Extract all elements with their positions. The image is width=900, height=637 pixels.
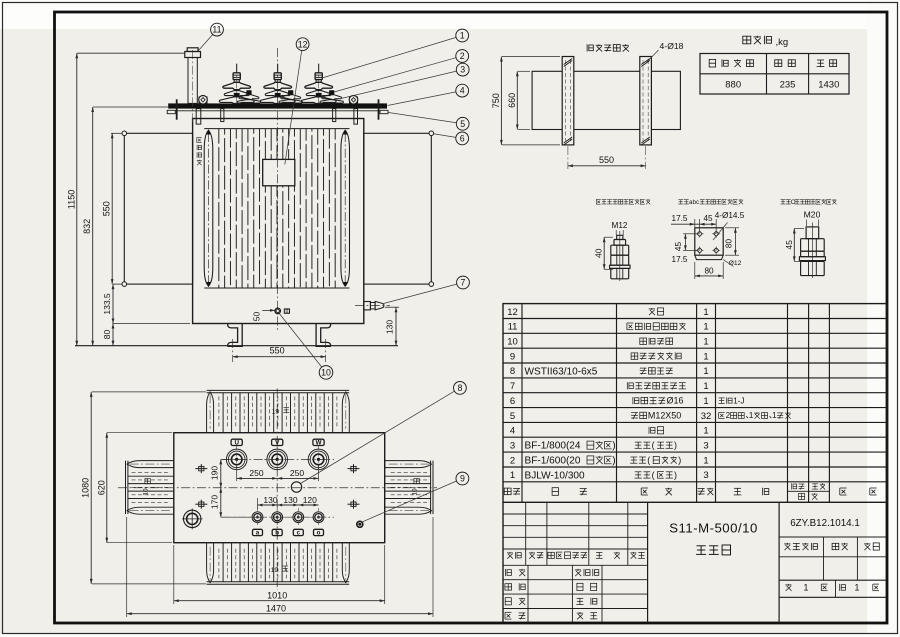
svg-text:190: 190 bbox=[210, 466, 220, 480]
svg-text:c: c bbox=[297, 530, 301, 537]
svg-text:2: 2 bbox=[510, 455, 515, 466]
svg-text:45: 45 bbox=[784, 240, 794, 250]
svg-text:1-J: 1-J bbox=[733, 396, 744, 405]
svg-text:): ) bbox=[612, 441, 615, 452]
svg-text:M12X50: M12X50 bbox=[648, 411, 681, 421]
svg-text:4-Ø18: 4-Ø18 bbox=[660, 41, 684, 51]
svg-text:80: 80 bbox=[725, 239, 734, 249]
svg-text:17.5: 17.5 bbox=[672, 214, 688, 223]
svg-text:19: 19 bbox=[272, 409, 280, 416]
svg-text:Ø16: Ø16 bbox=[667, 396, 684, 406]
svg-text:2: 2 bbox=[460, 51, 465, 61]
svg-text:9: 9 bbox=[460, 474, 465, 484]
svg-text:2: 2 bbox=[726, 411, 731, 420]
svg-text:550: 550 bbox=[599, 155, 614, 165]
svg-text:5: 5 bbox=[510, 411, 515, 422]
svg-text:1: 1 bbox=[772, 411, 777, 420]
svg-text:BJLW-10/300: BJLW-10/300 bbox=[525, 470, 586, 481]
svg-text:17.5: 17.5 bbox=[672, 255, 688, 264]
svg-text:832: 832 bbox=[82, 219, 92, 234]
svg-text:1: 1 bbox=[703, 337, 708, 348]
svg-text:4-Ø14.5: 4-Ø14.5 bbox=[715, 211, 745, 220]
svg-text:3: 3 bbox=[460, 65, 465, 75]
svg-text:Ø12: Ø12 bbox=[729, 260, 742, 267]
svg-text:(: ( bbox=[647, 455, 650, 465]
svg-text:130: 130 bbox=[385, 320, 395, 334]
svg-text:3: 3 bbox=[510, 440, 515, 451]
svg-text:1: 1 bbox=[703, 307, 708, 318]
svg-text:250: 250 bbox=[290, 468, 304, 478]
svg-text:M20: M20 bbox=[804, 210, 821, 220]
svg-text:WSTII63/10-6x5: WSTII63/10-6x5 bbox=[525, 366, 598, 377]
svg-text:BF-1/800(24: BF-1/800(24 bbox=[525, 441, 581, 452]
svg-text:1: 1 bbox=[703, 396, 708, 407]
svg-text:): ) bbox=[674, 440, 677, 450]
svg-text:1470: 1470 bbox=[266, 603, 286, 613]
svg-text:BF-1/600(20: BF-1/600(20 bbox=[525, 455, 581, 466]
svg-text:1430: 1430 bbox=[818, 79, 839, 90]
svg-text:): ) bbox=[674, 470, 677, 480]
svg-text:5: 5 bbox=[460, 119, 465, 129]
svg-text:1: 1 bbox=[804, 583, 809, 593]
svg-text:6ZY.B12.1014.1: 6ZY.B12.1014.1 bbox=[790, 518, 860, 529]
svg-text:550: 550 bbox=[102, 201, 112, 216]
svg-text:6: 6 bbox=[460, 134, 465, 144]
svg-text:1: 1 bbox=[703, 351, 708, 362]
svg-text:1010: 1010 bbox=[267, 590, 287, 600]
svg-text:1080: 1080 bbox=[81, 478, 91, 498]
svg-text:1150: 1150 bbox=[66, 190, 76, 209]
svg-text:620: 620 bbox=[96, 480, 106, 495]
svg-text:,kg: ,kg bbox=[776, 37, 789, 48]
svg-text:6: 6 bbox=[510, 396, 515, 407]
svg-text:3: 3 bbox=[703, 440, 708, 451]
svg-text:12: 12 bbox=[298, 39, 308, 49]
svg-text:S11-M-500/10: S11-M-500/10 bbox=[669, 521, 758, 536]
svg-text:880: 880 bbox=[725, 79, 741, 90]
svg-text:250: 250 bbox=[249, 468, 263, 478]
svg-text:10: 10 bbox=[412, 488, 419, 496]
svg-text:3: 3 bbox=[703, 470, 708, 481]
svg-text:10: 10 bbox=[143, 488, 150, 496]
svg-text:170: 170 bbox=[210, 495, 220, 509]
svg-text:1: 1 bbox=[749, 411, 754, 420]
svg-text:11: 11 bbox=[508, 322, 518, 333]
svg-text:550: 550 bbox=[270, 346, 285, 356]
svg-text:1: 1 bbox=[703, 322, 708, 333]
svg-text:80: 80 bbox=[704, 267, 714, 276]
svg-text:120: 120 bbox=[303, 495, 317, 505]
svg-text:): ) bbox=[612, 455, 615, 466]
svg-text:7: 7 bbox=[510, 381, 515, 392]
svg-text:45: 45 bbox=[674, 242, 683, 252]
svg-text:1: 1 bbox=[855, 583, 860, 593]
svg-text:o: o bbox=[317, 530, 321, 537]
svg-text:10: 10 bbox=[507, 337, 518, 348]
svg-text:12: 12 bbox=[507, 307, 518, 318]
svg-text:(: ( bbox=[652, 440, 655, 450]
svg-text:1: 1 bbox=[703, 381, 708, 392]
svg-text:W: W bbox=[316, 440, 322, 447]
svg-text:8: 8 bbox=[457, 383, 462, 393]
svg-text:9: 9 bbox=[510, 351, 515, 362]
svg-text:8: 8 bbox=[510, 366, 515, 377]
svg-text:130: 130 bbox=[263, 495, 277, 505]
svg-text:1: 1 bbox=[460, 31, 465, 41]
svg-text:750: 750 bbox=[491, 93, 501, 108]
svg-text:b: b bbox=[275, 530, 279, 537]
svg-text:80: 80 bbox=[102, 330, 112, 340]
svg-text:1: 1 bbox=[703, 426, 708, 437]
svg-text:M12: M12 bbox=[612, 221, 628, 230]
svg-text:1: 1 bbox=[703, 455, 708, 466]
svg-text:abc: abc bbox=[689, 199, 699, 206]
svg-text:11: 11 bbox=[212, 25, 221, 35]
svg-text:(: ( bbox=[652, 470, 655, 480]
svg-text:133.5: 133.5 bbox=[102, 293, 112, 315]
svg-text:1: 1 bbox=[510, 470, 515, 481]
svg-text:4: 4 bbox=[510, 426, 515, 437]
svg-text:45: 45 bbox=[703, 214, 713, 223]
svg-text:19: 19 bbox=[271, 567, 279, 574]
svg-text:32: 32 bbox=[701, 411, 712, 422]
svg-text:50: 50 bbox=[252, 312, 262, 322]
svg-text:40: 40 bbox=[594, 248, 604, 258]
svg-text:1: 1 bbox=[703, 366, 708, 377]
svg-text:4: 4 bbox=[460, 86, 465, 96]
svg-text:): ) bbox=[678, 455, 681, 465]
svg-text:U: U bbox=[234, 440, 239, 447]
svg-text:130: 130 bbox=[283, 495, 297, 505]
svg-text:660: 660 bbox=[507, 93, 517, 108]
svg-text:a: a bbox=[256, 530, 260, 537]
svg-text:10: 10 bbox=[321, 368, 331, 378]
svg-text:7: 7 bbox=[461, 278, 466, 288]
svg-text:235: 235 bbox=[780, 79, 796, 90]
